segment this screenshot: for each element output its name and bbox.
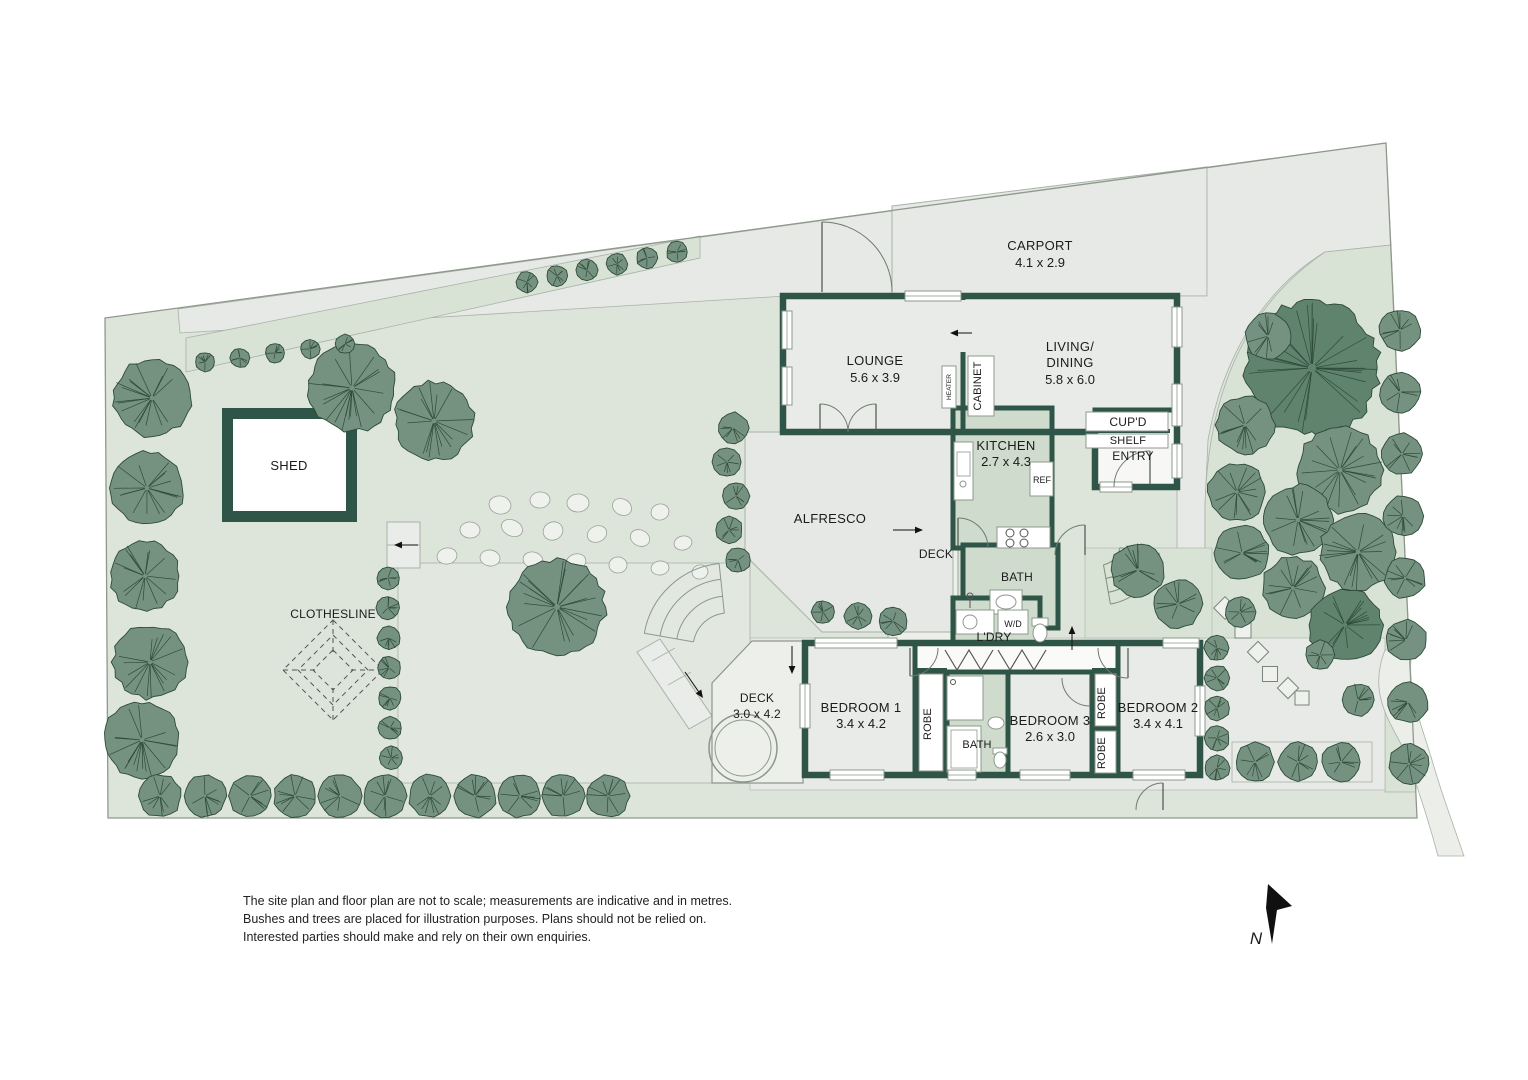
disclaimer-line-1: The site plan and floor plan are not to … <box>243 894 732 908</box>
wd-label: W/D <box>1004 619 1022 629</box>
north-label: N <box>1250 929 1263 948</box>
bedroom1-dims: 3.4 x 4.2 <box>836 716 886 731</box>
kitchen-dims: 2.7 x 4.3 <box>981 454 1031 469</box>
bedroom2-label: BEDROOM 2 <box>1118 700 1199 715</box>
cabinet-label: CABINET <box>972 361 984 410</box>
lounge-dims: 5.6 x 3.9 <box>850 370 900 385</box>
robe2-label: ROBE <box>1096 687 1108 719</box>
deck-lower-dims: 3.0 x 4.2 <box>733 707 781 721</box>
bedroom3-dims: 2.6 x 3.0 <box>1025 729 1075 744</box>
bath-label: BATH <box>1001 570 1033 584</box>
deck-upper-label: DECK <box>919 547 953 561</box>
lounge-label: LOUNGE <box>847 353 904 368</box>
living-dining-label-1: LIVING/ <box>1046 339 1094 354</box>
north-arrow-icon <box>1266 884 1292 944</box>
carport-label: CARPORT <box>1007 238 1072 253</box>
deck-lower-label: DECK <box>740 691 774 705</box>
robe3-label: ROBE <box>1096 737 1108 769</box>
ref-label: REF <box>1033 475 1052 485</box>
bath2-label: BATH <box>962 739 991 751</box>
disclaimer-line-3: Interested parties should make and rely … <box>243 930 591 944</box>
entry-label: ENTRY <box>1112 449 1153 463</box>
living-dining-label-2: DINING <box>1046 355 1093 370</box>
clothesline-label: CLOTHESLINE <box>290 607 376 621</box>
robe1-label: ROBE <box>922 708 934 740</box>
heater-label: HEATER <box>946 374 953 400</box>
living-dining-dims: 5.8 x 6.0 <box>1045 372 1095 387</box>
site-plan-page: CARPORT 4.1 x 2.9 LOUNGE 5.6 x 3.9 LIVIN… <box>0 0 1528 1080</box>
cupboard-label: CUP'D <box>1109 415 1146 429</box>
bedroom3-label: BEDROOM 3 <box>1010 713 1091 728</box>
shelf-label: SHELF <box>1110 435 1147 447</box>
shed-label: SHED <box>270 458 307 473</box>
alfresco-label: ALFRESCO <box>794 511 866 526</box>
carport-dims: 4.1 x 2.9 <box>1015 255 1065 270</box>
bedroom1-label: BEDROOM 1 <box>821 700 902 715</box>
laundry-label: L'DRY <box>976 630 1011 644</box>
site-plan-drawing: CARPORT 4.1 x 2.9 LOUNGE 5.6 x 3.9 LIVIN… <box>0 0 1528 1080</box>
kitchen-label: KITCHEN <box>976 438 1035 453</box>
disclaimer-line-2: Bushes and trees are placed for illustra… <box>243 912 706 926</box>
bedroom2-dims: 3.4 x 4.1 <box>1133 716 1183 731</box>
